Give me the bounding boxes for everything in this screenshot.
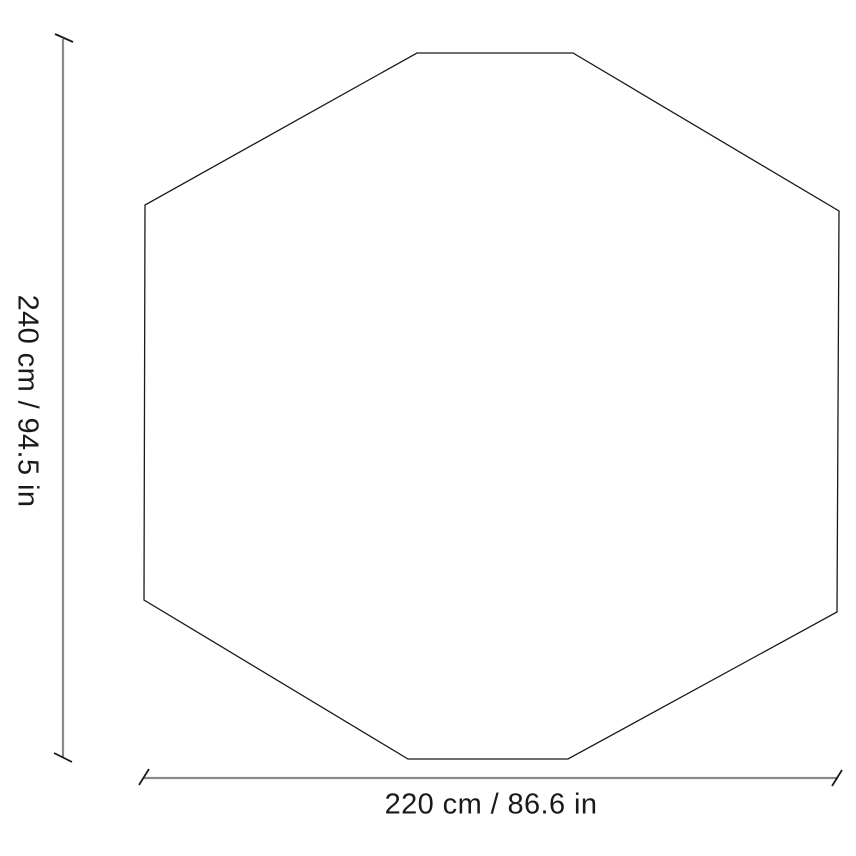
height-dimension-label: 240 cm / 94.5 in	[13, 295, 42, 508]
width-dimension	[139, 769, 842, 786]
diagram-canvas	[0, 0, 856, 856]
dimension-diagram: 240 cm / 94.5 in 220 cm / 86.6 in	[0, 0, 856, 856]
width-dimension-label: 220 cm / 86.6 in	[385, 791, 598, 820]
octagon-outline	[144, 53, 839, 759]
height-dimension	[54, 34, 73, 762]
